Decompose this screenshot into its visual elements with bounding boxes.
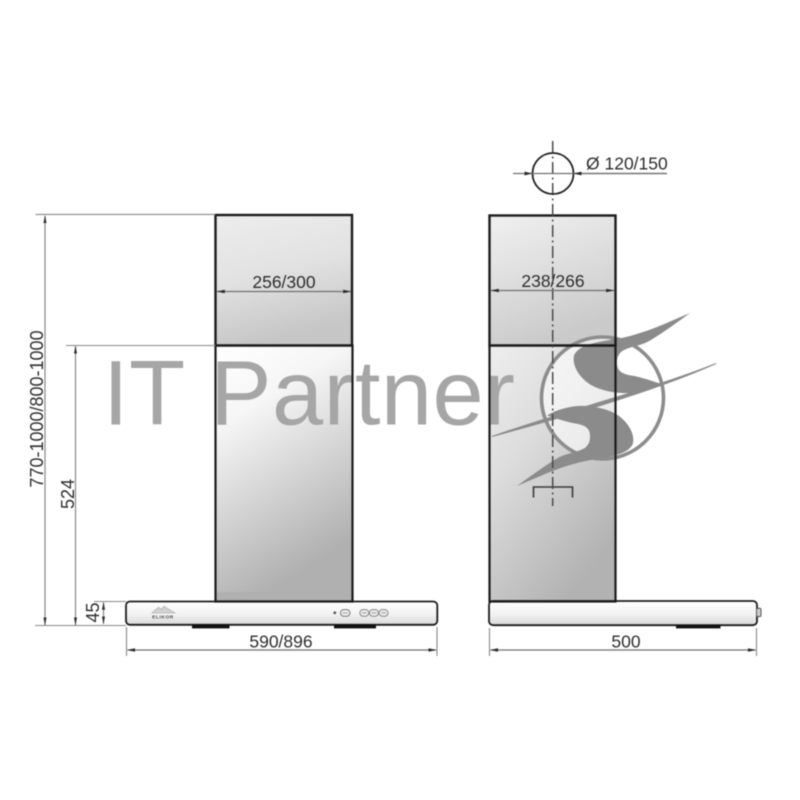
svg-text:ELIKOR: ELIKOR: [152, 615, 174, 621]
svg-text:238/266: 238/266: [521, 271, 584, 291]
svg-text:45: 45: [83, 602, 103, 622]
svg-text:770-1000/800-1000: 770-1000/800-1000: [27, 330, 47, 487]
svg-text:Ø 120/150: Ø 120/150: [586, 154, 668, 174]
svg-text:500: 500: [611, 632, 640, 652]
svg-text:IT Partner: IT Partner: [103, 343, 515, 445]
svg-text:524: 524: [58, 479, 78, 509]
svg-text:590/896: 590/896: [249, 632, 312, 652]
svg-text:256/300: 256/300: [252, 272, 316, 292]
